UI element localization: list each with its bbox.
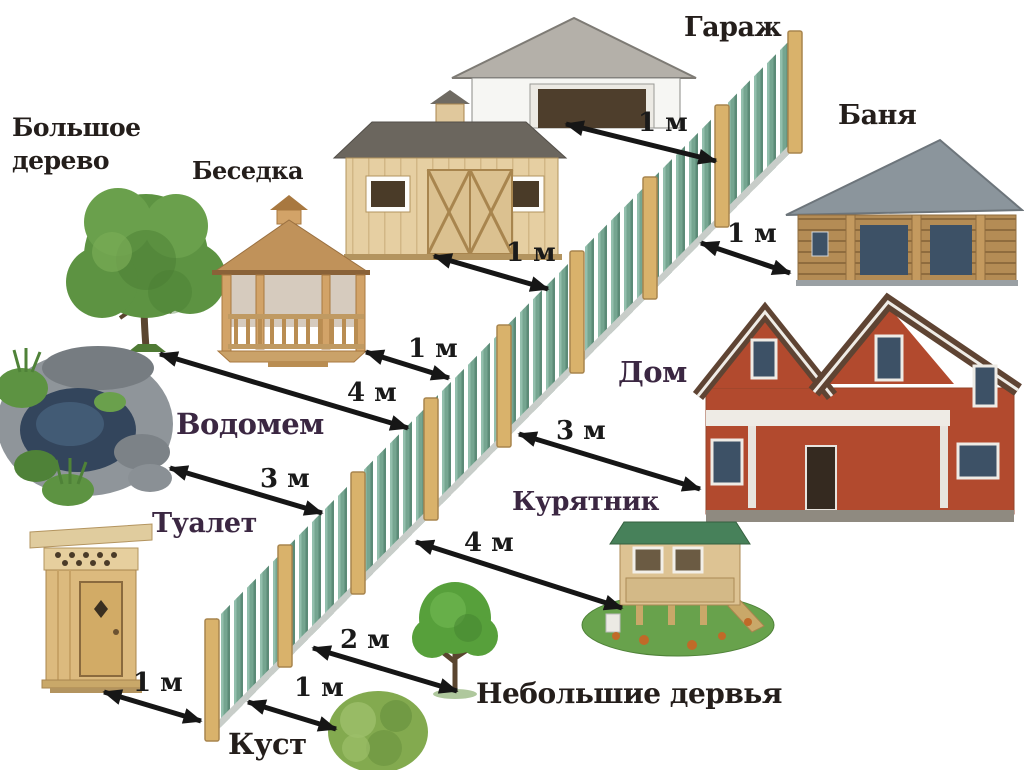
arrow-fence-to-house: [519, 434, 700, 489]
distance-garage-to-fence: 1 м: [638, 108, 688, 138]
garage-label: Гараж: [684, 10, 781, 45]
distance-toilet-to-fence: 1 м: [133, 668, 183, 698]
bush-label: Куст: [228, 726, 307, 764]
gazebo-label: Беседка: [192, 155, 303, 186]
pond-label: Водомем: [176, 406, 324, 444]
big-tree-label: Большое дерево: [12, 112, 177, 177]
banya-illustration: [786, 140, 1022, 286]
distance-coop-to-fence: 4 м: [464, 528, 514, 558]
chicken-coop-illustration: [582, 522, 774, 656]
distance-small-trees-to-fence: 2 м: [340, 625, 390, 655]
distance-shed-to-fence: 1 м: [506, 238, 556, 268]
distance-pond-to-fence: 3 м: [260, 464, 310, 494]
distance-gazebo-to-fence: 1 м: [408, 334, 458, 364]
property-setback-diagram: Гараж Баня Большое дерево Беседка Дом Во…: [0, 0, 1024, 770]
distance-big-tree-to-fence: 4 м: [347, 378, 397, 408]
big-tree-illustration: [66, 188, 226, 352]
house-label: Дом: [618, 354, 687, 392]
distance-bush-to-fence: 1 м: [294, 673, 344, 703]
pond-illustration: [0, 346, 173, 506]
chicken-coop-label: Курятник: [512, 486, 659, 520]
distance-house-to-fence: 3 м: [556, 416, 606, 446]
distance-banya-to-fence: 1 м: [727, 219, 777, 249]
toilet-label: Туалет: [152, 506, 257, 541]
arrow-fence-to-bush: [248, 702, 336, 729]
house-illustration: [698, 302, 1018, 522]
small-trees-label: Небольшие дервья: [476, 676, 782, 712]
banya-label: Баня: [838, 98, 916, 133]
